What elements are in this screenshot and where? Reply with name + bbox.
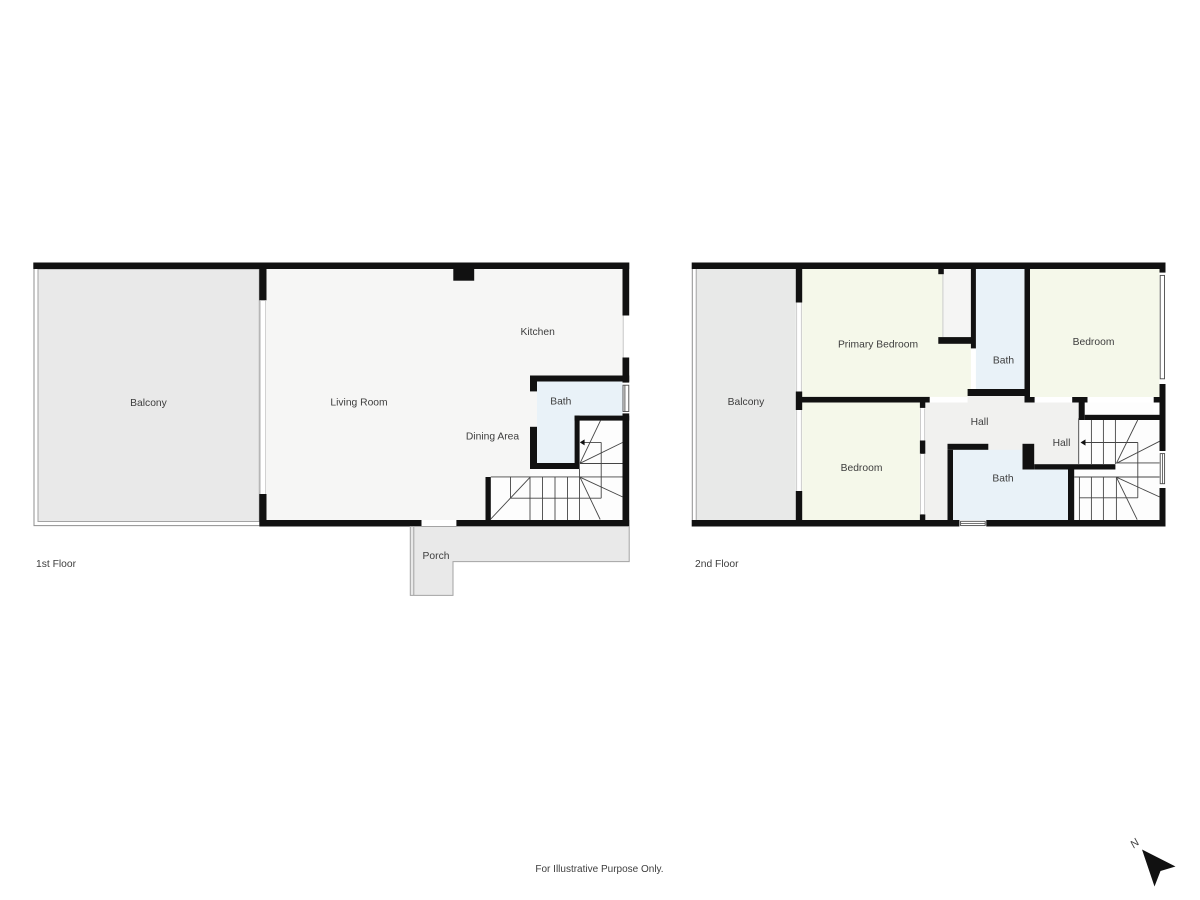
svg-text:For Illustrative Purpose Only.: For Illustrative Purpose Only. xyxy=(535,864,663,875)
svg-text:Living Room: Living Room xyxy=(330,398,387,409)
svg-text:Primary Bedroom: Primary Bedroom xyxy=(838,340,918,351)
svg-text:Porch: Porch xyxy=(423,551,450,562)
svg-text:Hall: Hall xyxy=(971,417,989,428)
svg-text:Bath: Bath xyxy=(550,396,571,407)
svg-text:Bath: Bath xyxy=(992,474,1013,485)
svg-text:Kitchen: Kitchen xyxy=(521,327,556,338)
svg-text:Bath: Bath xyxy=(993,356,1014,367)
svg-text:Dining Area: Dining Area xyxy=(466,432,520,443)
svg-text:Balcony: Balcony xyxy=(130,398,167,409)
svg-text:2nd Floor: 2nd Floor xyxy=(695,559,739,570)
svg-text:Bedroom: Bedroom xyxy=(1073,337,1115,348)
svg-text:Bedroom: Bedroom xyxy=(841,463,883,474)
svg-text:Hall: Hall xyxy=(1053,438,1071,449)
svg-text:1st Floor: 1st Floor xyxy=(36,559,77,570)
svg-text:Balcony: Balcony xyxy=(728,397,765,408)
